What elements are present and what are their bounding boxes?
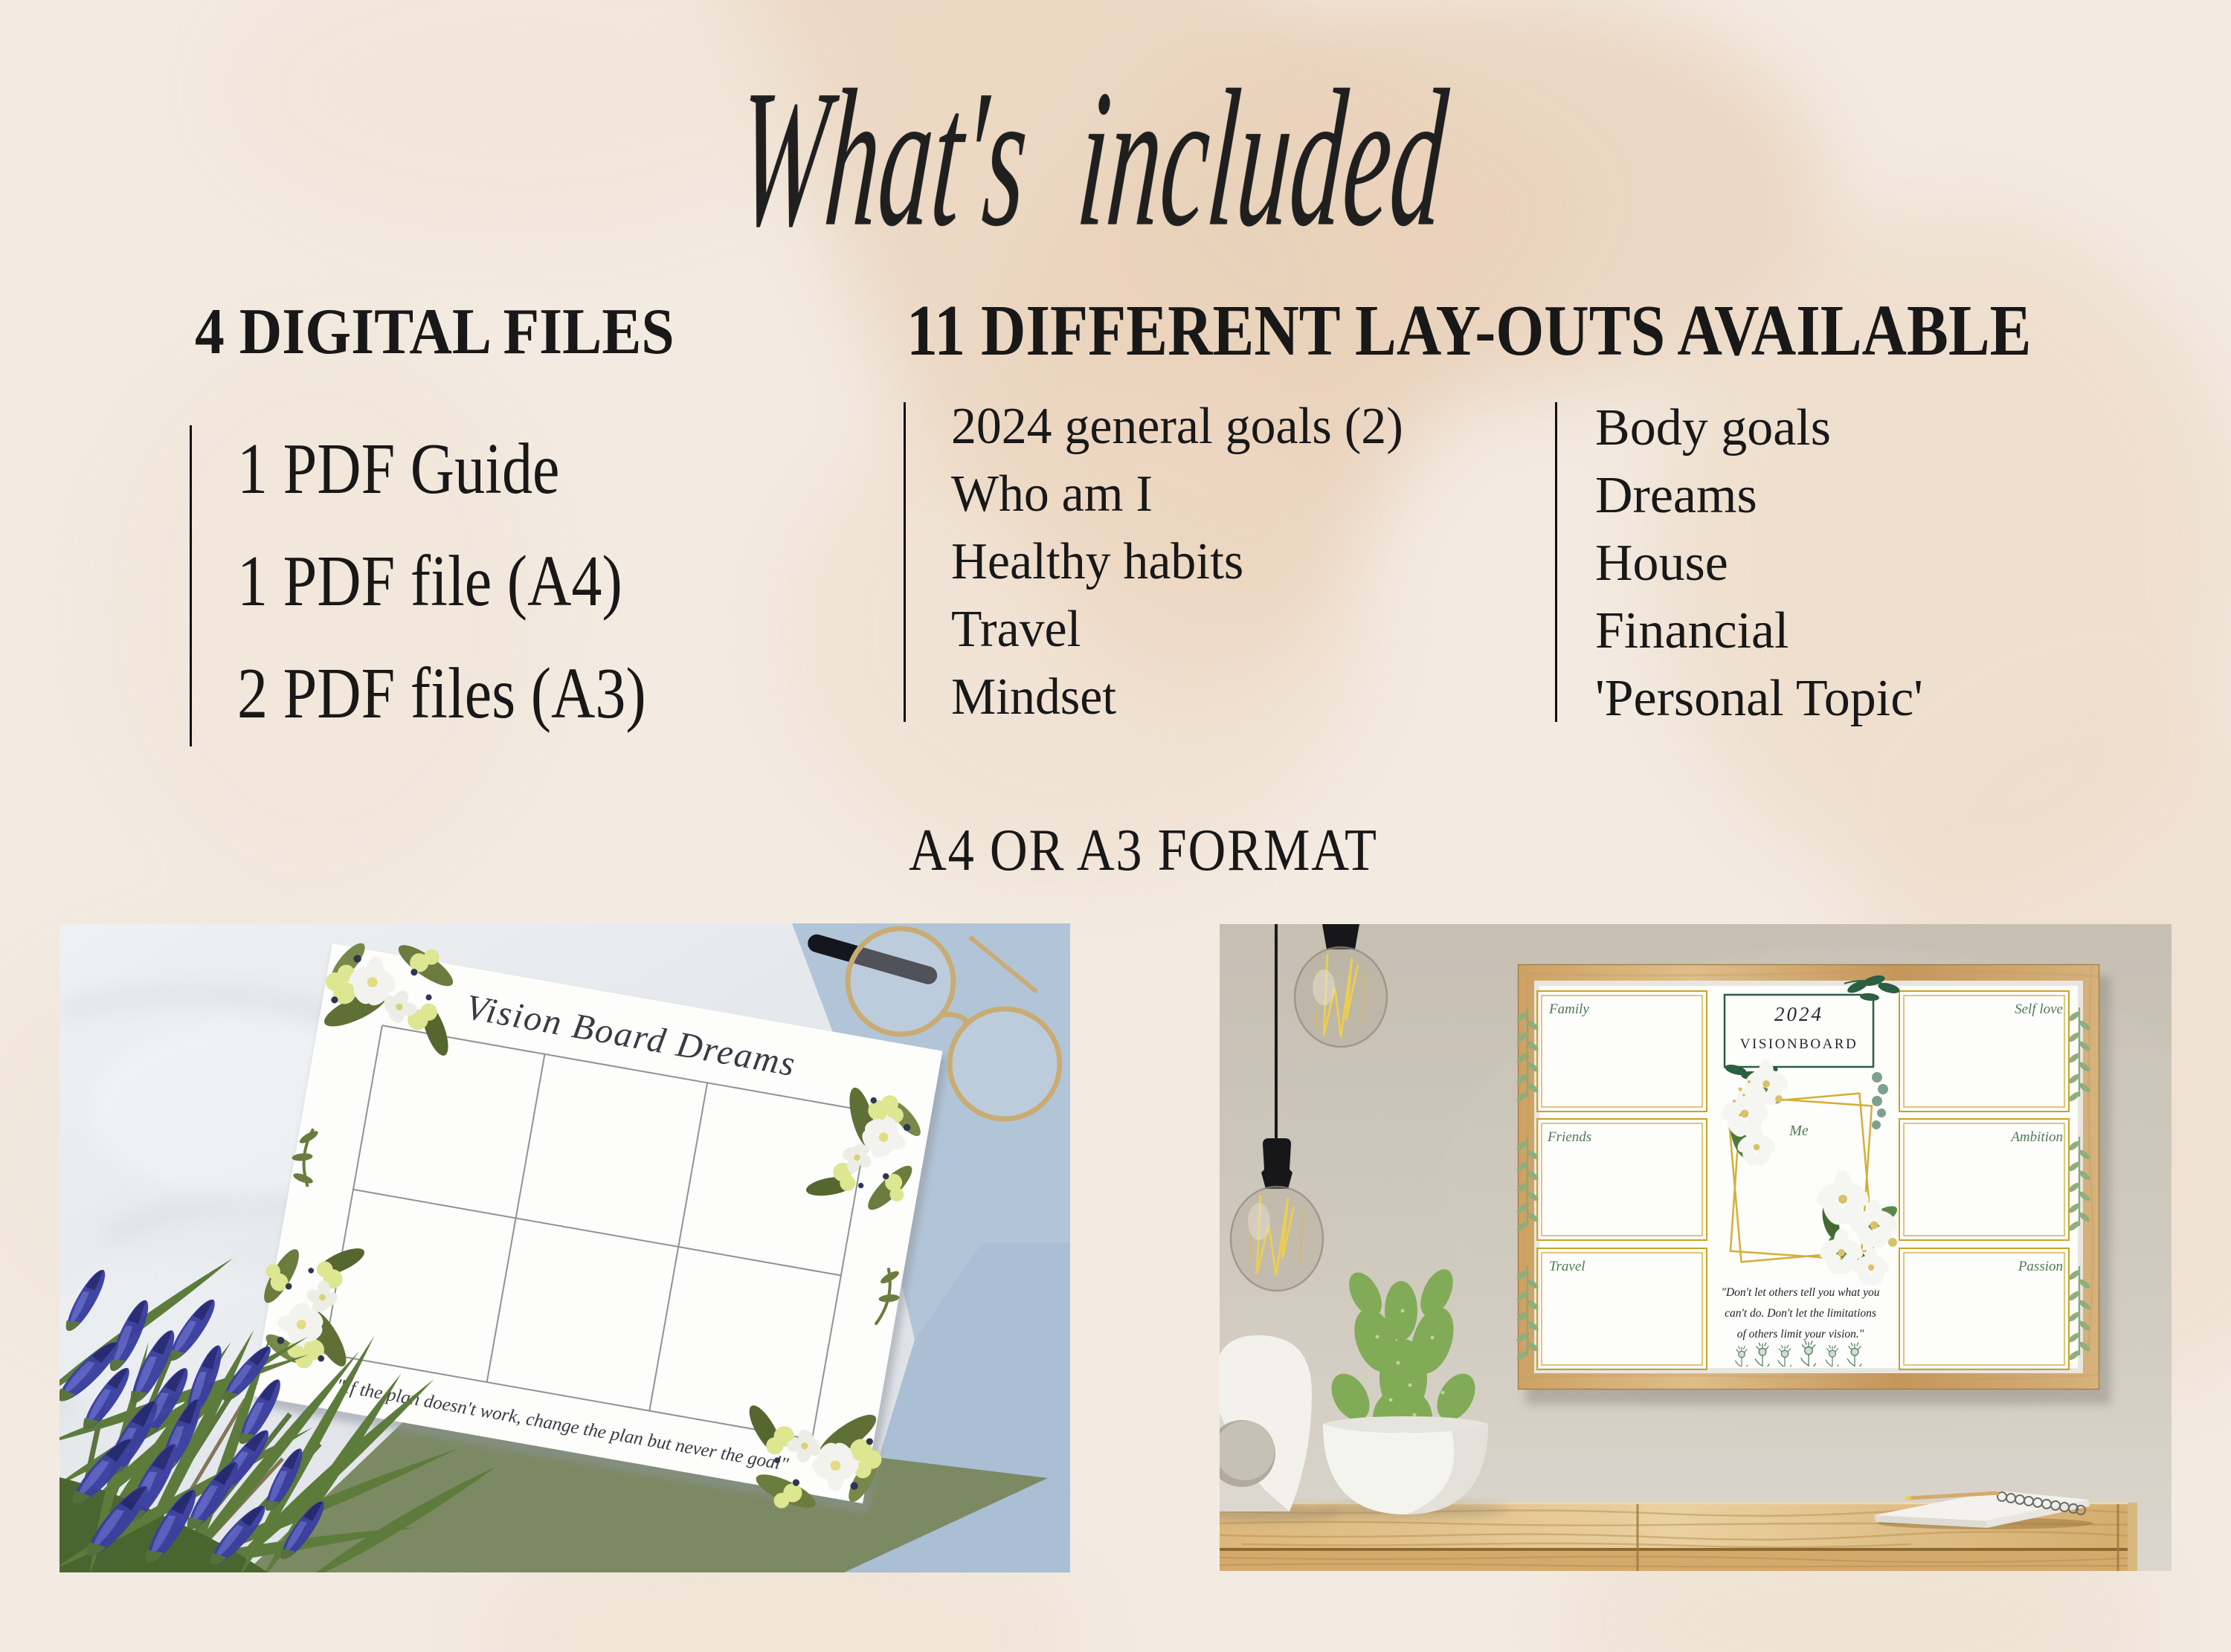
svg-text:Ambition: Ambition xyxy=(2009,1129,2063,1145)
svg-text:VISIONBOARD: VISIONBOARD xyxy=(1740,1036,1858,1052)
svg-text:Self love: Self love xyxy=(2015,1001,2063,1017)
svg-text:"Don't let others tell you wha: "Don't let others tell you what you xyxy=(1721,1286,1879,1299)
svg-text:Me: Me xyxy=(1789,1123,1809,1139)
svg-text:Passion: Passion xyxy=(2018,1259,2063,1274)
svg-text:Friends: Friends xyxy=(1547,1129,1591,1145)
svg-text:2024: 2024 xyxy=(1774,1003,1823,1025)
svg-text:Family: Family xyxy=(1548,1001,1589,1017)
svg-text:of others limit your vision.": of others limit your vision." xyxy=(1737,1328,1864,1340)
svg-text:Travel: Travel xyxy=(1549,1259,1585,1274)
svg-text:can't do. Don't let the limita: can't do. Don't let the limitations xyxy=(1725,1307,1876,1320)
